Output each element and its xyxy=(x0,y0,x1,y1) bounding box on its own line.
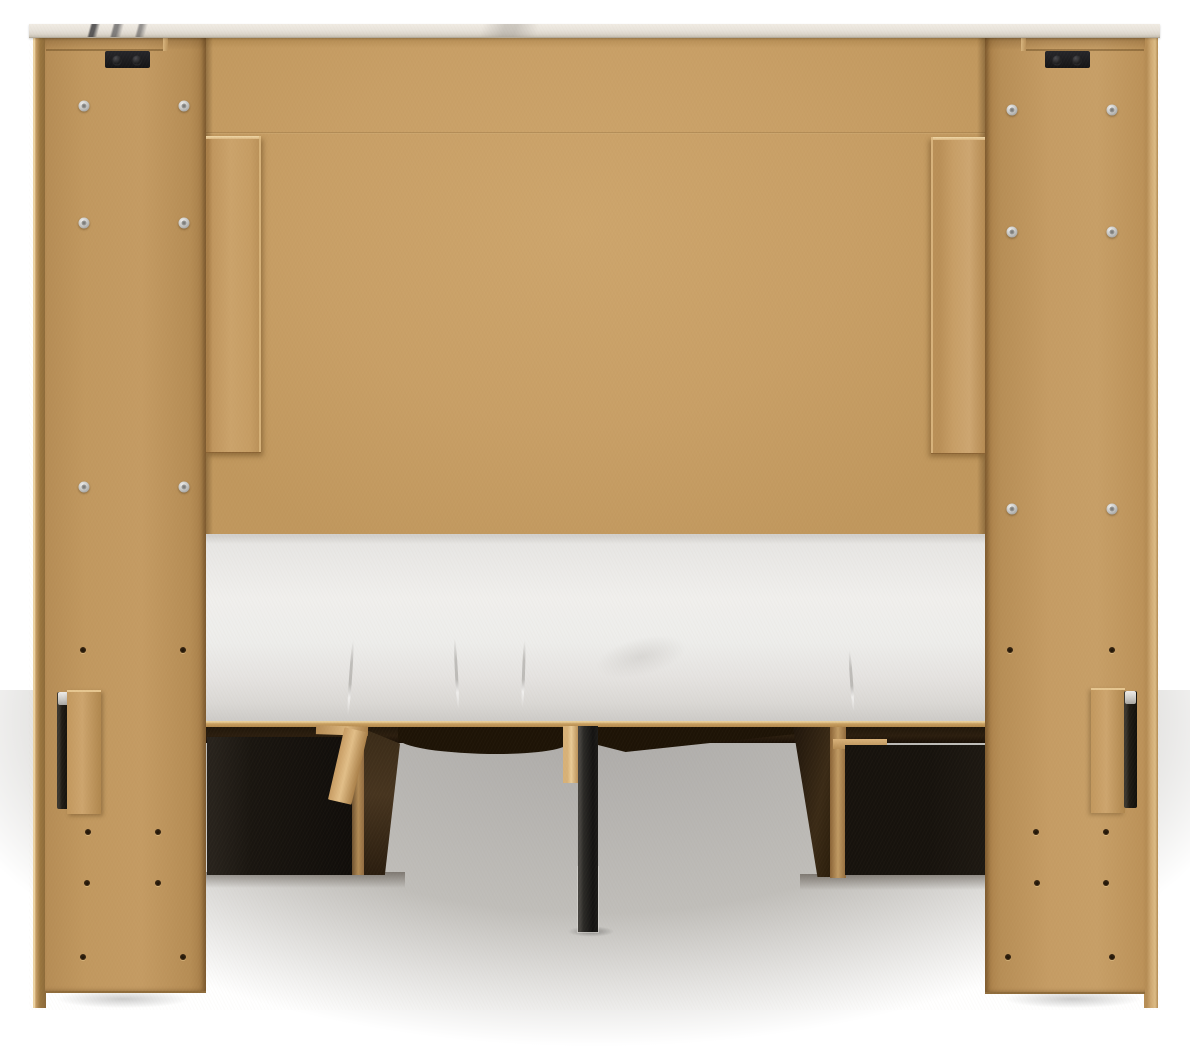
pilot-hole xyxy=(80,647,86,653)
bracket-screw-icon xyxy=(113,56,122,65)
pilot-hole xyxy=(155,880,161,886)
back-panel-rail-seam xyxy=(204,132,986,134)
pilot-hole xyxy=(80,954,86,960)
bracket-screw-icon xyxy=(133,56,142,65)
mattress-crease xyxy=(848,650,855,712)
pilot-hole xyxy=(180,954,186,960)
mattress-crease xyxy=(453,638,460,710)
center-support-slat xyxy=(563,726,578,783)
pilot-hole xyxy=(155,829,161,835)
mattress-sheen xyxy=(570,615,711,699)
right-rail-bracket-cap xyxy=(1125,691,1136,704)
left-leg-plank xyxy=(206,136,261,453)
center-support-leg xyxy=(578,726,598,932)
screw-icon xyxy=(179,218,190,229)
screw-icon xyxy=(179,101,190,112)
product-photo-bed-back-view xyxy=(0,0,1190,1050)
headboard-back-panel xyxy=(204,36,986,538)
screw-icon xyxy=(1007,504,1018,515)
bracket-screw-icon xyxy=(1073,56,1082,65)
left-drawer-box xyxy=(207,737,354,875)
pilot-hole xyxy=(180,647,186,653)
screw-icon xyxy=(179,482,190,493)
pilot-hole xyxy=(85,829,91,835)
bracket-screw-icon xyxy=(1053,56,1062,65)
pilot-hole xyxy=(1103,880,1109,886)
marble-top-cap xyxy=(29,24,1160,38)
left-rail-bracket-block xyxy=(67,690,101,814)
screw-icon xyxy=(1007,227,1018,238)
pilot-hole xyxy=(1007,647,1013,653)
screw-icon xyxy=(79,482,90,493)
pilot-hole xyxy=(1005,954,1011,960)
screw-icon xyxy=(1107,105,1118,116)
screw-icon xyxy=(79,101,90,112)
mattress-foundation xyxy=(204,534,986,722)
right-top-rail-end xyxy=(1021,37,1026,51)
left-side-panel xyxy=(45,36,206,993)
right-leg-plank xyxy=(931,137,986,454)
pilot-hole xyxy=(1109,647,1115,653)
screw-icon xyxy=(1107,227,1118,238)
pilot-hole xyxy=(1103,829,1109,835)
right-side-return-edge xyxy=(1144,36,1158,1008)
left-top-rail-end xyxy=(163,37,168,51)
right-drawer-wood-edge xyxy=(830,727,846,878)
mattress-crease xyxy=(346,640,354,716)
pilot-hole xyxy=(1034,880,1040,886)
pilot-hole xyxy=(1033,829,1039,835)
right-rail-bracket-bar xyxy=(1124,691,1137,808)
pilot-hole xyxy=(1109,954,1115,960)
screw-icon xyxy=(1107,504,1118,515)
right-drawer-box xyxy=(845,745,986,875)
mattress-crease xyxy=(521,640,526,708)
screw-icon xyxy=(79,218,90,229)
pilot-hole xyxy=(84,880,90,886)
right-side-panel xyxy=(985,36,1145,994)
screw-icon xyxy=(1007,105,1018,116)
right-rail-bracket-block xyxy=(1091,688,1125,813)
